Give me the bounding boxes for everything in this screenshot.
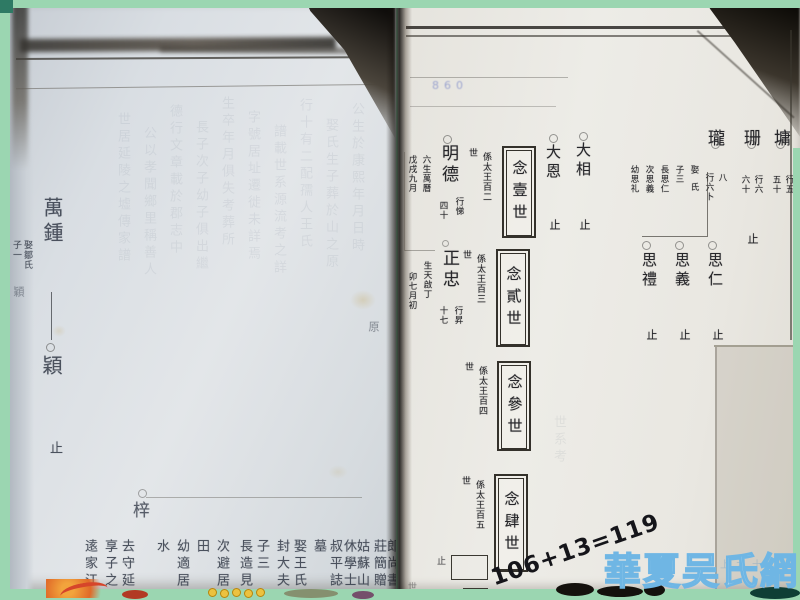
illegible-ghost-column: 字號居址遷徙未詳焉 <box>244 110 263 263</box>
second-son-note: 次思義 <box>644 165 656 194</box>
biography-fragment-column: 封大夫 <box>273 539 292 590</box>
mat-border-left <box>0 0 10 592</box>
yellow-dot <box>256 588 265 597</box>
right-page: 860 墉 行五 五十 珊 行六 六十 止 瓏 八 行六卜 娶氏 子三 長思仁 … <box>398 0 800 591</box>
rank-annotation: 六十 <box>740 175 752 194</box>
illegible-ghost-column: 世系考 <box>550 415 569 466</box>
member-name-daen: 大恩 <box>542 144 563 182</box>
line-ends-marker: 止 <box>435 556 448 566</box>
rank-annotation: 行悌 <box>454 197 466 216</box>
illegible-ghost-column: 生卒年月俱失考葬所 <box>218 96 237 249</box>
line-ends-marker: 止 <box>744 233 760 246</box>
biography-fragment-column: 幼適居 <box>173 539 192 590</box>
member-name-long: 瓏 <box>702 129 727 150</box>
mat-corner-dark <box>0 0 13 13</box>
birth-date-note: 生天啟丁 <box>422 261 434 299</box>
son-name-siren: 思仁 <box>704 252 725 290</box>
sage-blob <box>284 589 338 598</box>
biography-fragment-column: 水 <box>153 539 172 556</box>
descent-connector-line <box>51 292 52 340</box>
rank-annotation: 行六卜 <box>704 173 716 202</box>
generation-note-cont: 世 <box>461 250 474 260</box>
biography-fragment-column: 田 <box>193 539 212 556</box>
scanned-genealogy-spread: 公生於康熙年月日時 娶氏生子葬於山之原 行十有二配孺人王氏 譜載世系源流考之詳 … <box>0 0 800 600</box>
plum-blob <box>352 591 374 599</box>
descent-marker-circle <box>708 241 717 250</box>
marriage-note: 娶氏 <box>689 165 701 200</box>
descendant-name-ying: 穎 <box>36 355 65 380</box>
descent-marker-circle <box>442 240 449 247</box>
rank-annotation: 行昇 <box>453 306 465 325</box>
line-ends-marker: 止 <box>576 219 592 232</box>
generation-note-cont: 世 <box>467 148 480 158</box>
member-name-mingde: 明德 <box>436 144 461 186</box>
member-name-shan: 珊 <box>738 129 763 150</box>
line-ends-marker: 止 <box>676 329 692 342</box>
biography-fragment-column: 墓 <box>310 539 329 556</box>
descent-marker-circle <box>579 132 588 141</box>
website-watermark: 華夏吴氏網 <box>604 541 799 595</box>
descent-marker-circle <box>46 343 55 352</box>
descent-connector-horizontal <box>642 236 708 237</box>
generation-box-23: 念參世 <box>497 361 531 451</box>
yellow-dot <box>232 588 241 597</box>
generation-label: 念參世 <box>504 374 525 440</box>
red-drawing-blob <box>122 590 148 599</box>
partial-box <box>451 555 488 580</box>
ruled-line-top <box>16 56 390 60</box>
member-name-daxiang: 大相 <box>572 142 593 180</box>
descent-connector-vertical <box>707 172 708 236</box>
illegible-ghost-column: 公以孝聞鄉里稱善人 <box>140 126 159 279</box>
faint-rule <box>410 77 568 78</box>
biography-fragment-column: 次避居 <box>213 539 232 590</box>
line-ends-marker: 止 <box>643 329 659 342</box>
biography-fragment-column: 娶王氏 <box>290 539 309 590</box>
biography-fragment-column: 長造見 <box>236 539 255 590</box>
mat-border-top <box>0 0 800 8</box>
generation-note-cont: 世 <box>463 362 476 372</box>
rank-annotation: 八 <box>717 173 729 183</box>
generation-note: 係太王百二 <box>481 152 494 202</box>
descendant-name-zi: 梓 <box>127 501 152 522</box>
descent-marker-circle <box>675 241 684 250</box>
generation-box-22: 念貳世 <box>496 249 530 347</box>
youngest-son-note: 幼思礼 <box>629 165 641 194</box>
paper-stain <box>328 465 348 479</box>
ink-smudge-band-2 <box>160 46 350 54</box>
rank-annotation: 十七 <box>438 306 450 325</box>
horizontal-connector-line <box>146 497 362 498</box>
ink-streak-left-edge <box>12 0 28 170</box>
generation-note: 係太王百四 <box>477 366 490 416</box>
paper-stain <box>52 325 66 337</box>
generation-box-21: 念壹世 <box>502 146 536 238</box>
illegible-ghost-column: 德行文章載於郡志中 <box>166 104 185 257</box>
dark-blob <box>556 583 594 596</box>
paper-stain <box>350 290 376 310</box>
biography-fragment-column: 子三 <box>253 539 272 573</box>
rank-annotation: 五十 <box>771 175 783 194</box>
generation-note: 係太王百三 <box>475 254 488 304</box>
illegible-ghost-column: 譜載世系源流考之詳 <box>270 124 289 277</box>
sons-count-note: 子三 <box>674 165 686 184</box>
generation-label: 念肆世 <box>501 491 522 557</box>
line-ends-marker: 止 <box>709 329 725 342</box>
descent-marker-circle <box>642 241 651 250</box>
illegible-ghost-column: 娶氏生子葬於山之原 <box>322 118 341 271</box>
birth-date-note: 六生萬曆 <box>421 155 433 193</box>
illegible-ghost-column: 世居延陵之墟傳家譜 <box>114 112 133 265</box>
line-ends-marker: 止 <box>546 219 562 232</box>
generation-label: 念壹世 <box>509 160 530 226</box>
son-name-siyi: 思義 <box>671 252 692 290</box>
member-name-yong: 墉 <box>768 129 793 150</box>
generation-note: 係太王百五 <box>474 480 487 530</box>
illegible-ghost-column: 公生於康熙年月日時 <box>348 102 367 255</box>
margin-character-yuan: 原 <box>365 321 381 334</box>
descent-marker-circle <box>549 134 558 143</box>
biography-fragment-column: 去守延 <box>118 539 137 590</box>
left-page: 公生於康熙年月日時 娶氏生子葬於山之原 行十有二配孺人王氏 譜載世系源流考之詳 … <box>10 0 396 591</box>
faint-rule <box>410 106 556 107</box>
line-ends-marker: 止 <box>46 441 65 458</box>
son-name-sili: 思禮 <box>638 252 659 290</box>
illegible-ghost-column: 行十有二配孺人王氏 <box>296 98 315 251</box>
yellow-dot <box>220 589 229 598</box>
wanzhong-son-note: 子一 <box>11 240 24 260</box>
generation-note-cont: 世 <box>460 476 473 486</box>
yellow-dot <box>208 588 217 597</box>
descent-marker-circle <box>443 135 452 144</box>
generation-label: 念貳世 <box>503 266 524 332</box>
eldest-son-note: 長思仁 <box>659 165 671 194</box>
mat-border-right <box>793 148 800 592</box>
ruled-line-second <box>16 84 390 90</box>
member-name-zhengzhong: 正忠 <box>437 249 462 291</box>
yellow-dot <box>244 589 253 598</box>
illegible-ghost-column: 長子次子幼子俱出繼 <box>192 120 211 273</box>
wanzhong-son-note-cont: 穎 <box>10 286 26 299</box>
rank-annotation: 行六 <box>753 175 765 194</box>
book-gutter-shadow <box>386 0 412 592</box>
ancestor-name-wanzhong: 萬鍾 <box>37 197 66 247</box>
stamp-number: 860 <box>432 79 468 92</box>
rank-annotation: 四十 <box>438 201 450 220</box>
